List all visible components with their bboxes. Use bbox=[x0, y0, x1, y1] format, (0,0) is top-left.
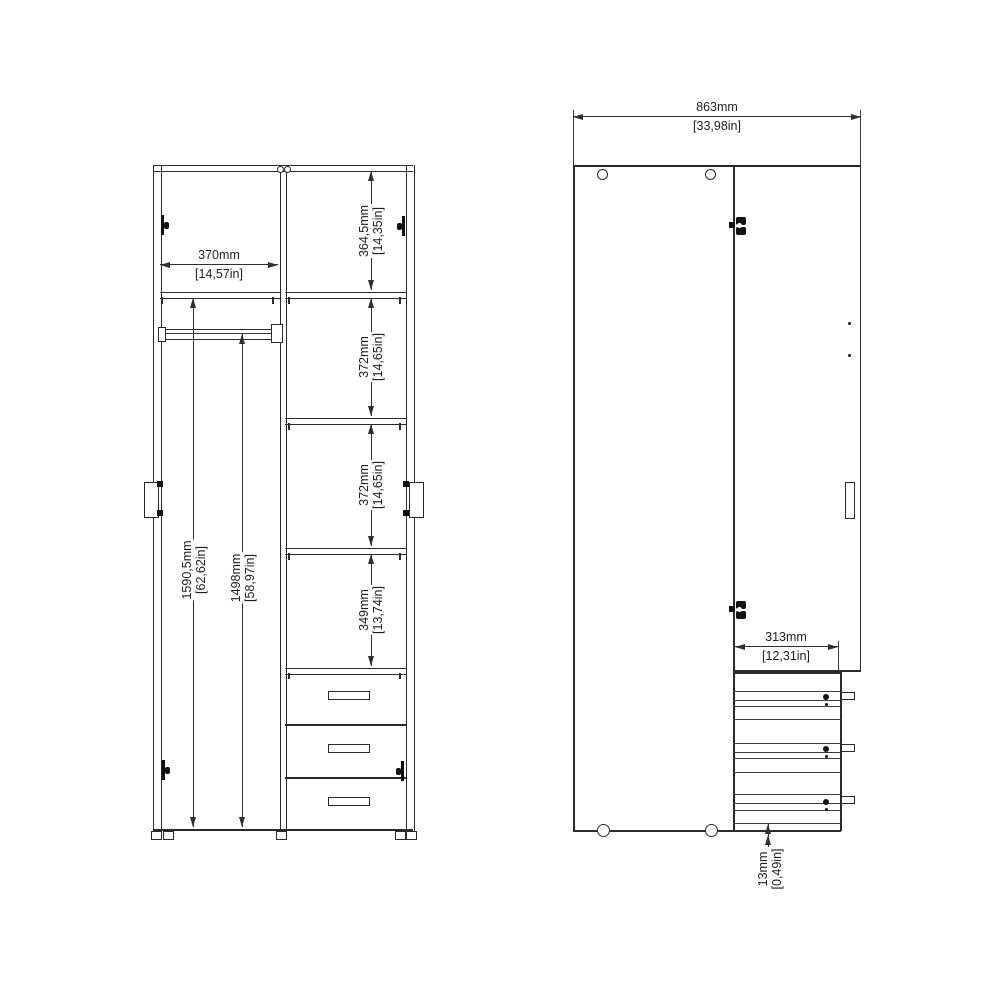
drawer-slide-line bbox=[733, 700, 841, 701]
screw-dot-small bbox=[825, 703, 828, 706]
drawer-stack-top bbox=[733, 672, 841, 674]
hinge-icon bbox=[729, 222, 735, 228]
hinge-pin-hole bbox=[737, 223, 742, 228]
screw-dot-small bbox=[825, 755, 828, 758]
dim-value-in: [0,49in] bbox=[770, 848, 784, 889]
side-left-edge bbox=[573, 165, 575, 831]
drawer-handle-tab bbox=[841, 692, 855, 700]
drawer-slide-line bbox=[733, 772, 841, 773]
screw-dot-small bbox=[825, 808, 828, 811]
drawer-slide-line bbox=[733, 752, 841, 753]
screw-dot bbox=[823, 746, 829, 752]
dim-label-drawer-depth-mm: 313mm bbox=[765, 630, 807, 644]
dim-label-drawer-depth-in: [12,31in] bbox=[762, 649, 810, 663]
side-door-front-edge bbox=[860, 165, 862, 671]
drawer-slide-line bbox=[733, 794, 841, 795]
hinge-icon bbox=[729, 606, 735, 612]
dim-extension-line bbox=[838, 641, 839, 671]
dim-value-mm: 13mm bbox=[756, 852, 770, 887]
dim-line-drawer-depth bbox=[735, 646, 838, 647]
screw-dot bbox=[823, 694, 829, 700]
screw-dot bbox=[823, 799, 829, 805]
drawer-handle-tab bbox=[841, 744, 855, 752]
hinge-pin-hole bbox=[737, 607, 742, 612]
side-view: 863mm [33,98in] 313mm [12,31in] bbox=[0, 0, 1000, 1000]
drawer-slide-line bbox=[733, 691, 841, 692]
foot-glide bbox=[597, 824, 610, 837]
hinge-icon bbox=[736, 611, 746, 619]
drawer-slide-line bbox=[733, 743, 841, 744]
drawer-slide-line bbox=[733, 758, 841, 759]
dim-line-overall-width bbox=[573, 116, 861, 117]
dim-arrow bbox=[765, 824, 771, 834]
side-panel-edge bbox=[733, 165, 735, 831]
panel-hole bbox=[705, 169, 716, 180]
door-handle-slot bbox=[845, 482, 855, 519]
dim-label-base-height: 13mm [0,49in] bbox=[756, 847, 784, 890]
dim-label-overall-width-mm: 863mm bbox=[696, 100, 738, 114]
panel-hole bbox=[597, 169, 608, 180]
dim-arrow bbox=[828, 644, 838, 650]
hinge-icon bbox=[736, 227, 746, 235]
dim-arrow bbox=[851, 114, 861, 120]
door-hole bbox=[848, 354, 851, 357]
foot-glide bbox=[705, 824, 718, 837]
dim-arrow bbox=[735, 644, 745, 650]
dim-arrow bbox=[573, 114, 583, 120]
drawer-slide-line bbox=[733, 823, 841, 824]
dim-label-overall-width-in: [33,98in] bbox=[693, 119, 741, 133]
door-hole bbox=[848, 322, 851, 325]
drawer-slide-line bbox=[733, 706, 841, 707]
side-top-edge bbox=[573, 165, 861, 167]
dim-arrow bbox=[765, 835, 771, 845]
drawer-handle-tab bbox=[841, 796, 855, 804]
wardrobe-dimension-drawing: 370mm [14,57in] 364,5mm [14,35in] 372mm … bbox=[0, 0, 1000, 1000]
drawer-slide-line bbox=[733, 719, 841, 720]
